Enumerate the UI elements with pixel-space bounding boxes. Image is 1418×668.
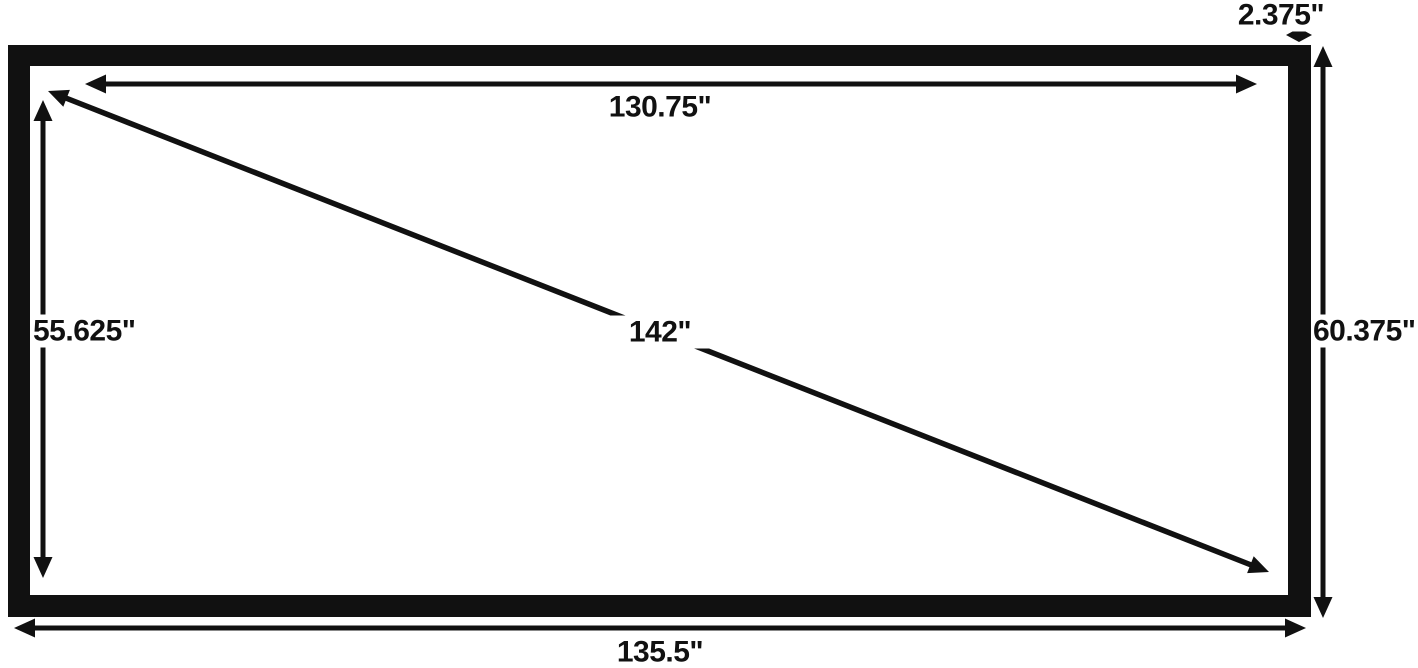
- outer-width-label: 135.5": [615, 636, 705, 668]
- frame-thickness-label: 2.375": [1236, 0, 1326, 32]
- diagonal-label: 142": [609, 316, 711, 349]
- inner-width-label: 130.75": [607, 91, 713, 124]
- outer-height-label: 60.375": [1311, 315, 1417, 348]
- screen-dimension-diagram: 130.75" 55.625" 142" 60.375" 135.5" 2.37…: [0, 0, 1418, 668]
- inner-height-label: 55.625": [31, 315, 137, 348]
